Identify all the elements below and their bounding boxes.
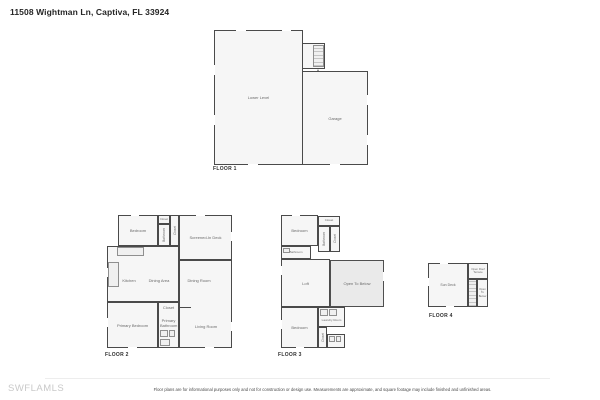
room-label: Primary Bedroom (117, 323, 148, 328)
floor3-label: FLOOR 3 (278, 352, 302, 358)
primary-bathroom-label: Primary Bathroom (160, 318, 177, 328)
kitchen-label: Kitchen (118, 278, 140, 283)
window-gap (128, 347, 137, 348)
window-gap (367, 135, 368, 145)
bath-fixture (329, 336, 335, 342)
room-label: Open Roof Terrace (469, 268, 487, 275)
window-gap (281, 266, 282, 275)
mls-watermark: SWFLAMLS (8, 383, 64, 394)
room-label: Bedroom (130, 228, 146, 233)
room-label: Loft (302, 281, 309, 286)
living-room-label: Living Room (192, 324, 220, 329)
laundry-machine (320, 309, 328, 316)
bath-fixture (283, 248, 290, 253)
room-closet: Closet (170, 215, 179, 246)
window-gap (231, 322, 232, 331)
room-label: Bathroom (162, 228, 166, 242)
open-to-below-area: Open To Below (330, 260, 384, 307)
kitchen-counter (108, 262, 119, 287)
floor2-label: FLOOR 2 (105, 352, 129, 358)
window-gap (214, 115, 215, 125)
stairs-treads (313, 45, 324, 67)
window-gap (282, 30, 291, 31)
room-label: Garage (328, 116, 341, 121)
window-gap (440, 263, 448, 264)
room-bedroom: Bedroom (281, 307, 318, 348)
room-label: Closet (325, 219, 334, 223)
room-loft: Loft (281, 259, 330, 307)
window-gap (236, 30, 246, 31)
room-screened-deck: Screened-In Deck (179, 215, 232, 260)
disclaimer-text: Floor plans are for informational purpos… (140, 387, 505, 392)
window-gap (107, 268, 108, 277)
window-gap (231, 232, 232, 241)
room-dining-living (179, 260, 232, 348)
room-label: Open To Below (343, 281, 370, 286)
window-gap (248, 164, 258, 165)
bath-fixture (336, 336, 341, 342)
room-primary-bedroom: Primary Bedroom (107, 302, 158, 348)
room-label: Closet (160, 218, 168, 221)
room-closet: Closet (330, 226, 340, 252)
window-gap (330, 164, 340, 165)
room-garage: Garage (302, 71, 368, 165)
room-label: Bedroom (291, 325, 307, 330)
closet-label: Closet (160, 305, 177, 310)
room-sun-deck: Sun Deck (428, 263, 468, 307)
room-label: Bathroom (322, 232, 326, 246)
window-gap (107, 318, 108, 327)
kitchen-counter (117, 247, 144, 256)
room-label: Open To Below (478, 288, 487, 298)
room-label: Laundry Room (322, 319, 342, 323)
room-open-to-below-small: Open To Below (477, 279, 488, 307)
room-label: Closet (321, 333, 325, 342)
room-label: Sun Deck (440, 283, 455, 287)
room-closet: Closet (158, 215, 170, 224)
window-gap (446, 306, 454, 307)
stairs-treads (468, 279, 477, 307)
room-bathroom: Bathroom (158, 224, 170, 246)
window-gap (383, 272, 384, 281)
room-label: Lower Level (248, 95, 270, 100)
floor1-label: FLOOR 1 (213, 166, 237, 172)
room-bedroom: Bedroom (118, 215, 158, 246)
floor4-label: FLOOR 4 (429, 313, 453, 319)
window-gap (214, 65, 215, 75)
room-label: Bathroom (289, 251, 302, 255)
dining-room-label: Dining Room (186, 278, 212, 283)
window-gap (205, 347, 214, 348)
window-gap (281, 320, 282, 329)
room-label: Closet (333, 234, 337, 243)
room-bathroom: Bathroom (318, 226, 330, 252)
bath-fixture (160, 330, 168, 337)
room-roof-terrace: Open Roof Terrace (468, 263, 488, 279)
footer-divider (45, 378, 550, 379)
page-title: 11508 Wightman Ln, Captiva, FL 33924 (10, 7, 169, 17)
window-gap (292, 215, 300, 216)
room-label: Bedroom (291, 228, 307, 233)
room-bedroom: Bedroom (281, 215, 318, 246)
laundry-machine (329, 309, 337, 316)
bath-fixture (160, 339, 170, 346)
room-closet: Closet (318, 327, 327, 348)
window-gap (131, 215, 139, 216)
room-lower-level: Lower Level (214, 30, 303, 165)
room-closet: Closet (318, 216, 340, 226)
wall-segment (179, 307, 191, 308)
dining-area-label: Dining Area (147, 278, 171, 283)
floorplan-page: 11508 Wightman Ln, Captiva, FL 33924 Low… (0, 0, 600, 400)
window-gap (428, 278, 429, 286)
room-label: Closet (173, 226, 177, 235)
room-label: Screened-In Deck (189, 235, 221, 240)
window-gap (367, 95, 368, 105)
window-gap (196, 215, 205, 216)
window-gap (296, 347, 304, 348)
bath-fixture (169, 330, 175, 337)
